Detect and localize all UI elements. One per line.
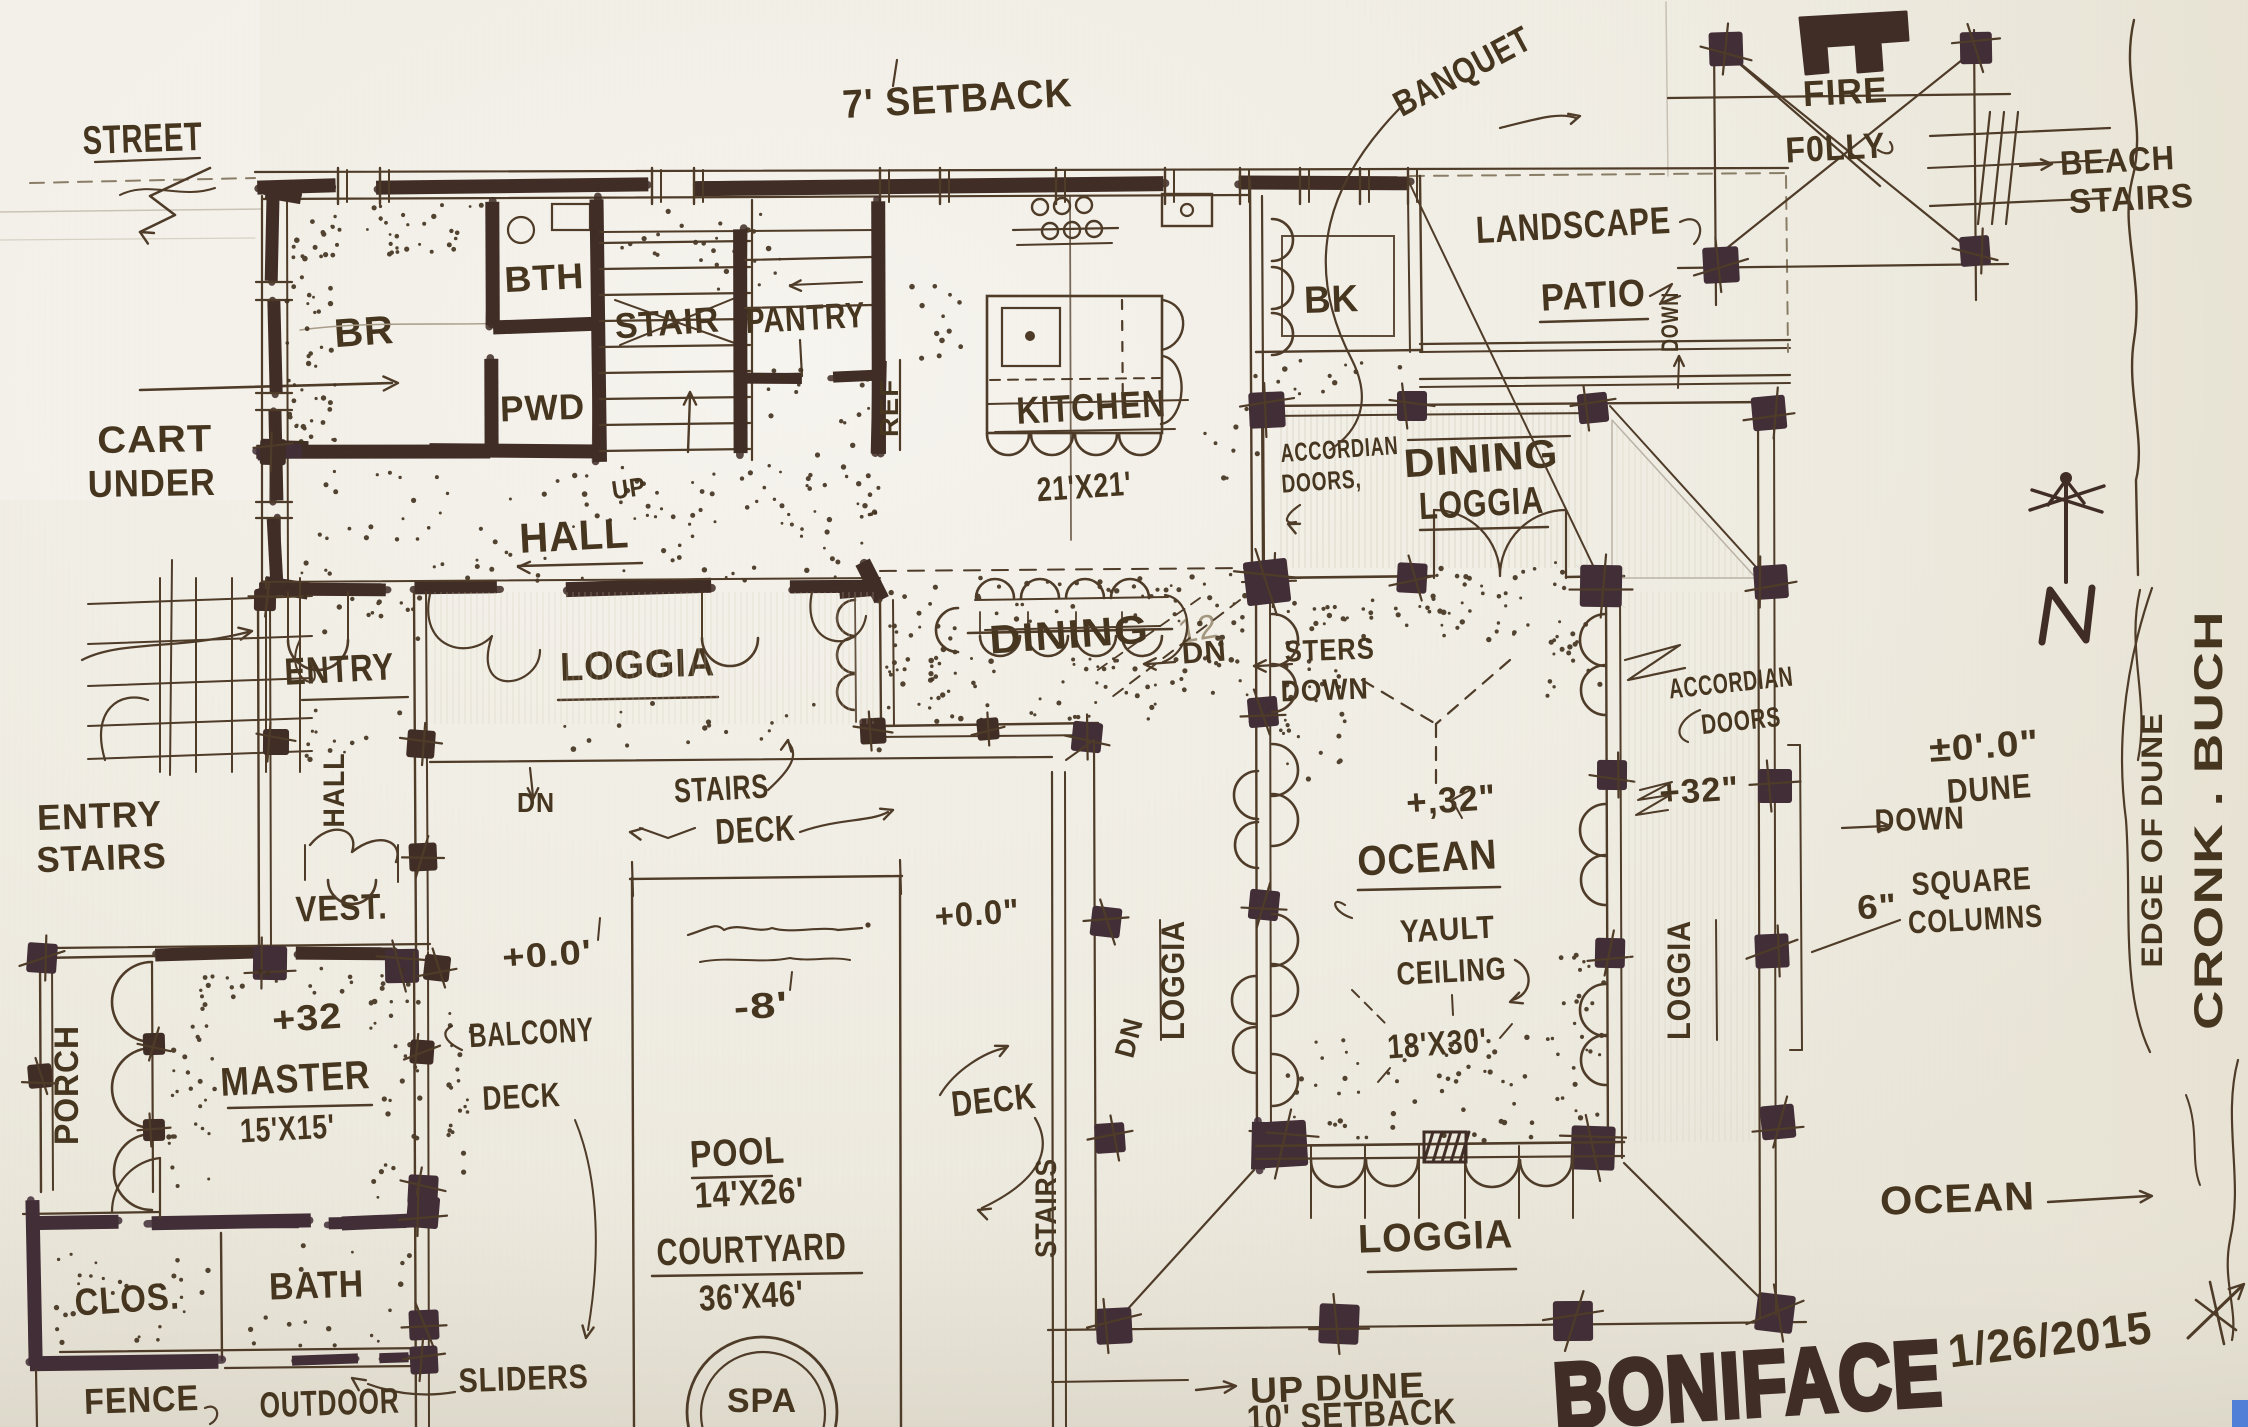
svg-text:OUTDOOR: OUTDOOR bbox=[259, 1380, 400, 1426]
svg-text:HALL: HALL bbox=[518, 509, 630, 562]
svg-text:MASTER: MASTER bbox=[219, 1053, 371, 1105]
svg-text:PWD: PWD bbox=[499, 386, 585, 430]
svg-text:ENTRY: ENTRY bbox=[283, 646, 395, 694]
svg-text:±0'.0": ±0'.0" bbox=[1928, 721, 2041, 770]
svg-text:+0.0": +0.0" bbox=[934, 892, 1021, 936]
svg-text:YAULT: YAULT bbox=[1399, 909, 1496, 950]
svg-text:UNDER: UNDER bbox=[87, 462, 216, 506]
svg-text:FENCE: FENCE bbox=[83, 1377, 199, 1422]
svg-text:STAIRS: STAIRS bbox=[36, 835, 167, 881]
svg-text:DOORS,: DOORS, bbox=[1280, 463, 1362, 499]
svg-text:EDGE OF DUNE: EDGE OF DUNE bbox=[2136, 713, 2169, 968]
svg-text:STAIRS: STAIRS bbox=[673, 768, 770, 811]
svg-text:UP: UP bbox=[610, 471, 648, 505]
svg-text:6": 6" bbox=[1856, 887, 1899, 928]
svg-text:BALCONY: BALCONY bbox=[468, 1011, 595, 1055]
svg-text:CART: CART bbox=[97, 418, 213, 462]
svg-text:OCEAN: OCEAN bbox=[1879, 1174, 2035, 1223]
svg-text:KITCHEN: KITCHEN bbox=[1015, 383, 1167, 433]
svg-text:LOGGIA: LOGGIA bbox=[1418, 480, 1545, 528]
svg-text:POOL: POOL bbox=[689, 1130, 786, 1177]
svg-text:LOGGIA: LOGGIA bbox=[1661, 920, 1697, 1040]
svg-text:BK: BK bbox=[1303, 278, 1359, 322]
svg-text:SPA: SPA bbox=[727, 1382, 797, 1420]
svg-text:DN: DN bbox=[1181, 634, 1228, 670]
svg-text:COURTYARD: COURTYARD bbox=[656, 1226, 847, 1275]
svg-text:+32: +32 bbox=[271, 995, 344, 1041]
svg-text:BTH: BTH bbox=[503, 255, 585, 300]
svg-text:10' SETBACK: 10' SETBACK bbox=[1246, 1390, 1457, 1427]
svg-text:DECK: DECK bbox=[714, 807, 796, 852]
svg-text:ENTRY: ENTRY bbox=[36, 793, 162, 838]
svg-text:-8': -8' bbox=[732, 983, 790, 1028]
svg-text:F0LLY: F0LLY bbox=[1784, 124, 1886, 170]
svg-text:CLOS.: CLOS. bbox=[73, 1275, 181, 1324]
svg-text:DECK: DECK bbox=[481, 1076, 561, 1118]
svg-text:REF: REF bbox=[874, 379, 904, 437]
svg-text:BR: BR bbox=[333, 308, 396, 356]
svg-text:CEILING: CEILING bbox=[1396, 950, 1508, 992]
svg-text:21'X21': 21'X21' bbox=[1036, 465, 1133, 510]
svg-text:14'X26': 14'X26' bbox=[693, 1169, 805, 1216]
svg-text:STREET: STREET bbox=[82, 115, 203, 163]
svg-text:18'X30': 18'X30' bbox=[1386, 1022, 1488, 1067]
svg-text:LOGGIA: LOGGIA bbox=[1357, 1212, 1513, 1261]
svg-text:+32": +32" bbox=[1658, 769, 1740, 812]
svg-text:STAIRS: STAIRS bbox=[1030, 1158, 1063, 1258]
svg-text:DUNE: DUNE bbox=[1946, 767, 2033, 811]
svg-text:SQUARE: SQUARE bbox=[1911, 860, 2033, 902]
svg-text:OCEAN: OCEAN bbox=[1356, 830, 1498, 884]
svg-text:15'X15': 15'X15' bbox=[239, 1108, 336, 1151]
svg-text:BEACH: BEACH bbox=[2059, 139, 2176, 183]
svg-text:COLUMNS: COLUMNS bbox=[1907, 898, 2044, 941]
svg-text:36'X46': 36'X46' bbox=[698, 1272, 805, 1318]
svg-text:+0.0': +0.0' bbox=[501, 933, 593, 977]
svg-text:BATH: BATH bbox=[268, 1263, 364, 1308]
svg-text:FIRE: FIRE bbox=[1802, 69, 1889, 114]
svg-text:PATIO: PATIO bbox=[1540, 272, 1647, 319]
svg-text:SLIDERS: SLIDERS bbox=[458, 1358, 589, 1401]
svg-text:HALL: HALL bbox=[318, 753, 351, 828]
svg-text:PANTRY: PANTRY bbox=[744, 294, 866, 341]
svg-text:CRONK . BUCH: CRONK . BUCH bbox=[2187, 610, 2231, 1030]
